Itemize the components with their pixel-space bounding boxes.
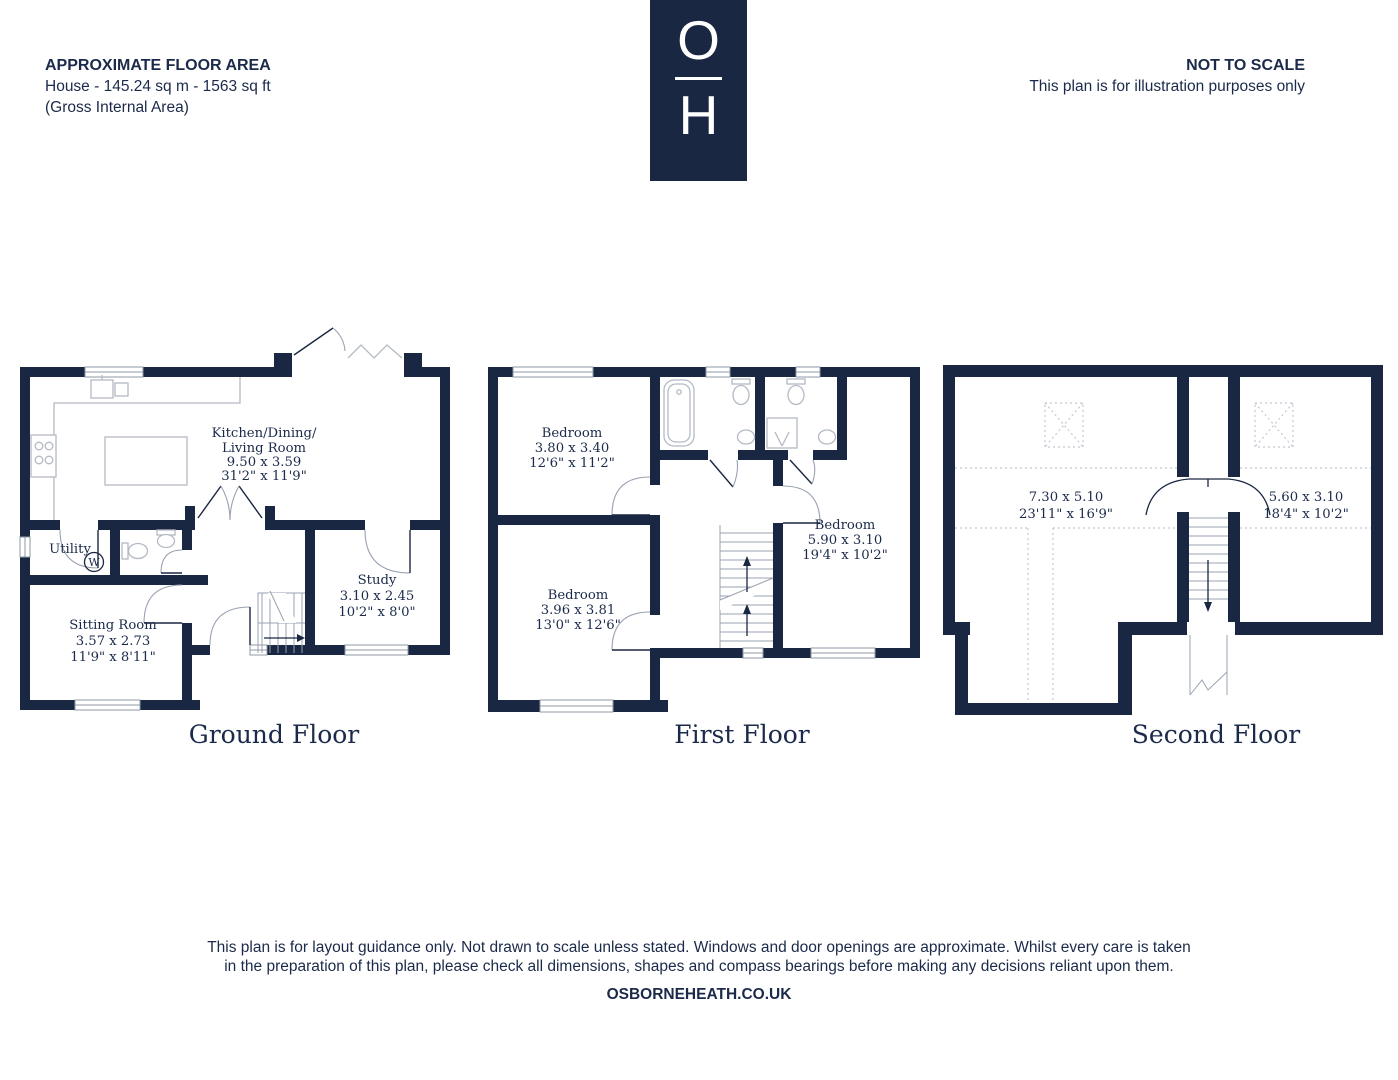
stairs-direction-arrow [297, 634, 305, 642]
room-label-sitting: Sitting Room [69, 618, 157, 633]
room-label-bedroom: Bedroom [548, 588, 609, 603]
floor-area-block: APPROXIMATE FLOOR AREA House - 145.24 sq… [45, 55, 271, 118]
floor-area-detail: House - 145.24 sq m - 1563 sq ft [45, 76, 271, 97]
first-floor-plan: Bedroom 3.80 x 3.40 12'6" x 11'2" Bedroo… [483, 360, 923, 715]
not-to-scale-note: This plan is for illustration purposes o… [1029, 76, 1305, 97]
kitchen-fixtures [31, 375, 240, 520]
logo-letter-h: H [679, 87, 719, 143]
website-text: OSBORNEHEATH.CO.UK [0, 986, 1398, 1004]
stairs-icon [258, 591, 305, 653]
stairs-up-arrow [743, 556, 751, 566]
floor-title-ground: Ground Floor [189, 720, 360, 749]
room-dimension-imperial: 23'11" x 16'9" [1019, 507, 1113, 522]
disclaimer-line1: This plan is for layout guidance only. N… [0, 938, 1398, 957]
not-to-scale-title: NOT TO SCALE [1029, 55, 1305, 76]
not-to-scale-block: NOT TO SCALE This plan is for illustrati… [1029, 55, 1305, 97]
room-label-study: Study [358, 573, 397, 588]
room-dimension-imperial: 31'2" x 11'9" [221, 469, 307, 484]
shower-icon [767, 418, 797, 448]
basin-icon [738, 430, 755, 444]
doors [612, 460, 820, 650]
room-dimension-metric: 5.60 x 3.10 [1269, 490, 1344, 505]
hob-icon [31, 435, 56, 477]
washing-machine-label: W [88, 556, 100, 569]
logo-divider [675, 77, 722, 80]
room-dimension-imperial: 13'0" x 12'6" [535, 618, 621, 633]
floor-area-note: (Gross Internal Area) [45, 97, 271, 118]
disclaimer: This plan is for layout guidance only. N… [0, 938, 1398, 976]
second-floor-plan: 7.30 x 5.10 23'11" x 16'9" 5.60 x 3.10 1… [940, 360, 1388, 720]
floor-area-title: APPROXIMATE FLOOR AREA [45, 55, 271, 76]
entrance-door-leaf [294, 328, 333, 355]
room-label-kitchen-line1: Kitchen/Dining/ [212, 426, 317, 441]
stairs-icon [1189, 518, 1228, 695]
sink-icon [91, 375, 128, 398]
room-label-kitchen-line2: Living Room [222, 441, 307, 456]
floor-title-first: First Floor [674, 720, 810, 749]
room-label-utility: Utility [49, 542, 91, 557]
toilet-icon [787, 379, 805, 405]
bath-icon [664, 380, 694, 446]
room-dimension-metric: 9.50 x 3.59 [227, 455, 302, 470]
stairs-icon [720, 525, 773, 648]
room-dimension-imperial: 12'6" x 11'2" [529, 456, 615, 471]
room-dimension-imperial: 11'9" x 8'11" [70, 650, 156, 665]
stairs-break-line [1190, 672, 1227, 695]
walls [943, 365, 1383, 715]
floor-title-second: Second Floor [1132, 720, 1300, 749]
basin-icon [157, 530, 175, 548]
bifold-door-icon [348, 345, 402, 358]
room-dimension-metric: 7.30 x 5.10 [1029, 490, 1104, 505]
room-dimension-metric: 3.57 x 2.73 [76, 634, 151, 649]
room-dimension-imperial: 10'2" x 8'0" [338, 605, 415, 620]
arched-opening [1146, 479, 1270, 515]
room-label-bedroom: Bedroom [815, 518, 876, 533]
bathroom-fixtures [664, 379, 836, 448]
toilet-icon [122, 543, 148, 559]
room-label-bedroom: Bedroom [542, 426, 603, 441]
toilet-icon [732, 379, 750, 405]
ground-floor-plan: W Kitchen/Dining/ Living Room 9.50 x 3.5… [18, 325, 458, 715]
skylight-icon [1045, 403, 1293, 447]
island-icon [105, 437, 187, 485]
room-dimension-metric: 3.10 x 2.45 [340, 589, 415, 604]
room-dimension-metric: 3.96 x 3.81 [541, 603, 616, 618]
room-dimension-metric: 5.90 x 3.10 [808, 533, 883, 548]
osborne-heath-logo: O H [650, 0, 747, 181]
room-labels: Kitchen/Dining/ Living Room 9.50 x 3.59 … [49, 426, 415, 665]
room-dimension-imperial: 19'4" x 10'2" [802, 548, 888, 563]
logo-letter-o: O [677, 12, 720, 68]
room-dimension-metric: 3.80 x 3.40 [535, 441, 610, 456]
room-dimension-imperial: 18'4" x 10'2" [1263, 507, 1349, 522]
stairs-down-arrow [1204, 602, 1212, 612]
basin-icon [819, 430, 836, 444]
disclaimer-line2: in the preparation of this plan, please … [0, 957, 1398, 976]
